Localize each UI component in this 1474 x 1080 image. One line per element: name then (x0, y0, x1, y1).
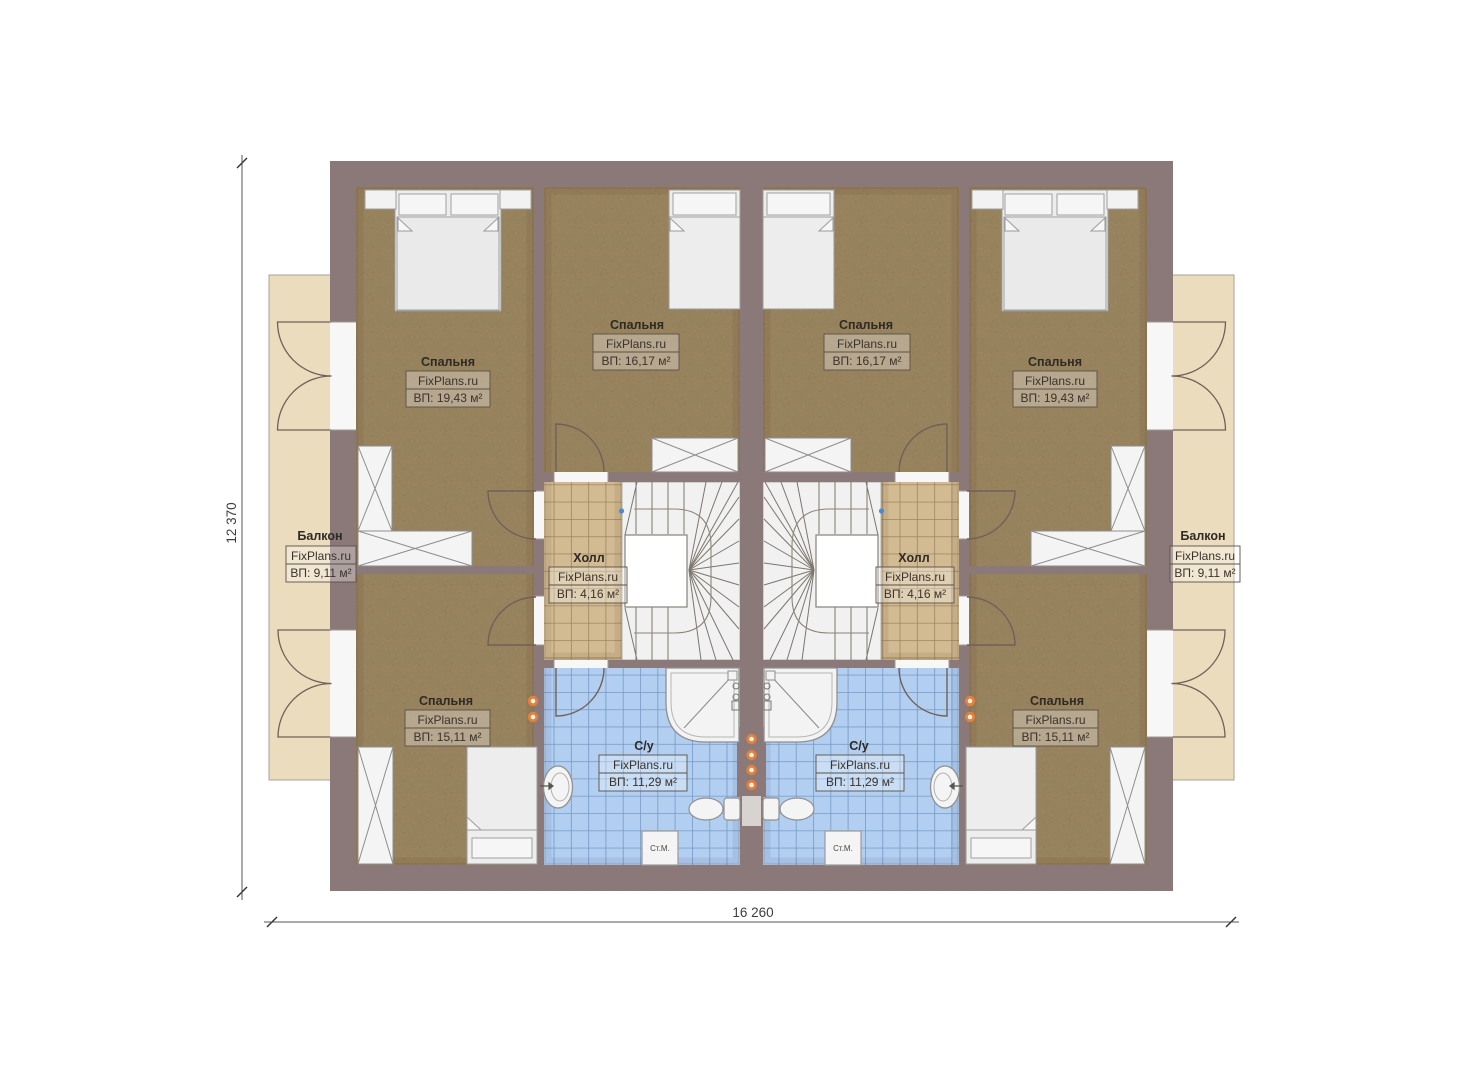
svg-text:Ст.М.: Ст.М. (650, 844, 670, 853)
svg-text:Ст.М.: Ст.М. (833, 844, 853, 853)
svg-text:ВП: 11,29 м²: ВП: 11,29 м² (609, 775, 677, 789)
svg-text:FixPlans.ru: FixPlans.ru (1175, 549, 1235, 563)
svg-text:Холл: Холл (573, 551, 604, 565)
svg-text:12 370: 12 370 (224, 502, 239, 543)
svg-text:ВП: 16,17 м²: ВП: 16,17 м² (833, 354, 902, 368)
svg-text:Спальня: Спальня (1030, 694, 1084, 708)
svg-text:FixPlans.ru: FixPlans.ru (606, 337, 666, 351)
svg-text:FixPlans.ru: FixPlans.ru (613, 758, 673, 772)
svg-text:Спальня: Спальня (610, 318, 664, 332)
svg-text:Спальня: Спальня (1028, 355, 1082, 369)
svg-text:ВП: 15,11 м²: ВП: 15,11 м² (1021, 730, 1089, 744)
svg-text:ВП: 19,43 м²: ВП: 19,43 м² (414, 391, 483, 405)
svg-text:Спальня: Спальня (421, 355, 475, 369)
svg-text:ВП: 9,11 м²: ВП: 9,11 м² (1174, 566, 1235, 580)
svg-text:FixPlans.ru: FixPlans.ru (558, 570, 618, 584)
svg-text:16 260: 16 260 (732, 905, 773, 920)
svg-text:FixPlans.ru: FixPlans.ru (1025, 713, 1085, 727)
svg-text:ВП: 4,16 м²: ВП: 4,16 м² (884, 587, 946, 601)
svg-text:ВП: 4,16 м²: ВП: 4,16 м² (557, 587, 619, 601)
svg-text:С/у: С/у (849, 739, 869, 753)
svg-text:С/у: С/у (634, 739, 654, 753)
svg-text:Балкон: Балкон (1180, 529, 1225, 543)
svg-text:ВП: 11,29 м²: ВП: 11,29 м² (826, 775, 894, 789)
svg-text:FixPlans.ru: FixPlans.ru (417, 713, 477, 727)
svg-text:FixPlans.ru: FixPlans.ru (830, 758, 890, 772)
svg-text:FixPlans.ru: FixPlans.ru (837, 337, 897, 351)
svg-text:ВП: 9,11 м²: ВП: 9,11 м² (290, 566, 351, 580)
svg-text:ВП: 16,17 м²: ВП: 16,17 м² (602, 354, 671, 368)
svg-text:FixPlans.ru: FixPlans.ru (418, 374, 478, 388)
svg-text:FixPlans.ru: FixPlans.ru (291, 549, 351, 563)
svg-text:Спальня: Спальня (839, 318, 893, 332)
svg-text:Холл: Холл (898, 551, 929, 565)
svg-text:Спальня: Спальня (419, 694, 473, 708)
svg-text:FixPlans.ru: FixPlans.ru (1025, 374, 1085, 388)
svg-text:ВП: 19,43 м²: ВП: 19,43 м² (1021, 391, 1090, 405)
svg-text:ВП: 15,11 м²: ВП: 15,11 м² (413, 730, 481, 744)
svg-text:Балкон: Балкон (297, 529, 342, 543)
svg-text:FixPlans.ru: FixPlans.ru (885, 570, 945, 584)
